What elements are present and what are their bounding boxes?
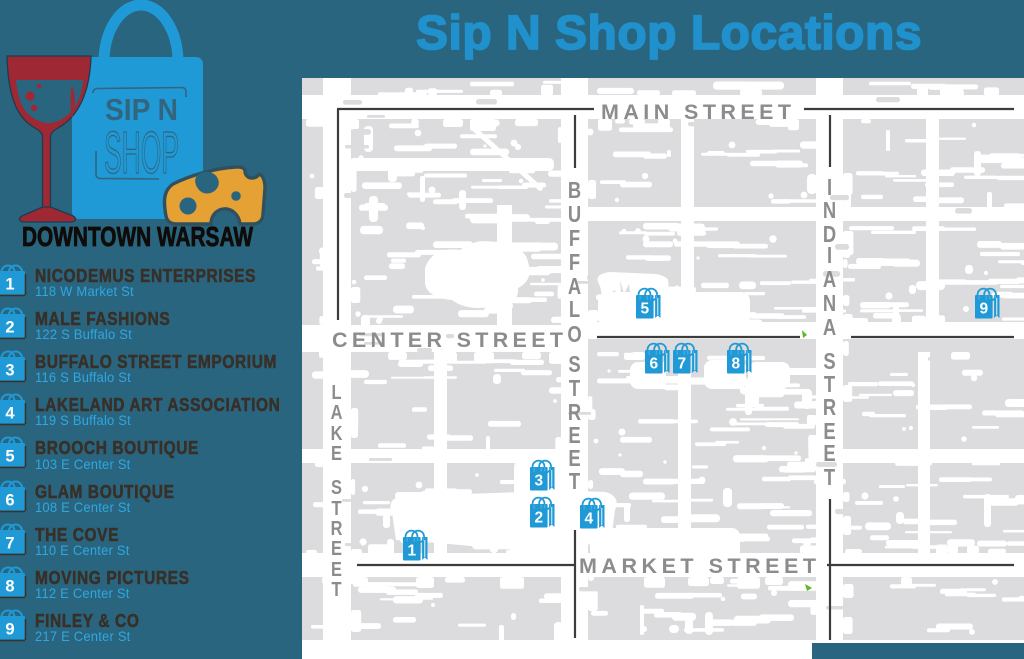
svg-text:5: 5 [5,448,14,466]
svg-text:9: 9 [5,621,14,639]
svg-text:A: A [823,315,836,340]
svg-text:S: S [568,352,580,377]
svg-text:S: S [331,475,342,498]
svg-text:E: E [568,446,580,471]
svg-text:9: 9 [979,301,988,318]
svg-text:SHOP: SHOP [104,120,179,186]
svg-text:T: T [331,577,342,600]
svg-text:4: 4 [584,511,593,528]
svg-text:MAIN STREET: MAIN STREET [601,100,791,124]
svg-text:F: F [569,226,580,251]
svg-text:7: 7 [677,356,686,373]
svg-text:T: T [569,469,580,494]
svg-text:4: 4 [5,405,15,423]
svg-text:T: T [569,376,580,401]
svg-text:S: S [823,349,835,374]
svg-text:I: I [827,175,832,200]
svg-text:2: 2 [5,319,14,337]
svg-text:7: 7 [5,535,14,553]
svg-text:I: I [827,243,832,268]
svg-text:F: F [569,250,580,275]
svg-text:6: 6 [649,356,658,373]
svg-text:E: E [331,536,342,559]
svg-text:N: N [823,198,836,223]
svg-text:B: B [568,178,581,203]
svg-text:1: 1 [5,276,14,294]
svg-text:U: U [568,202,581,227]
svg-text:R: R [823,395,836,420]
svg-text:E: E [823,441,835,466]
svg-text:1: 1 [407,543,416,560]
svg-text:R: R [568,400,581,425]
svg-text:O: O [567,322,581,347]
svg-text:5: 5 [640,301,649,318]
svg-text:E: E [331,441,342,464]
svg-text:8: 8 [731,356,740,373]
svg-text:A: A [331,400,343,423]
svg-text:T: T [824,372,835,397]
svg-text:A: A [823,267,836,292]
svg-text:8: 8 [5,578,14,596]
svg-text:2: 2 [534,510,543,527]
svg-text:3: 3 [534,473,543,490]
svg-text:T: T [824,465,835,490]
svg-text:DOWNTOWN WARSAW: DOWNTOWN WARSAW [22,221,253,252]
svg-text:6: 6 [5,492,14,510]
svg-text:N: N [823,291,836,316]
svg-text:E: E [568,423,580,448]
svg-text:A: A [568,274,581,299]
svg-text:3: 3 [5,362,14,380]
svg-text:L: L [569,297,580,322]
